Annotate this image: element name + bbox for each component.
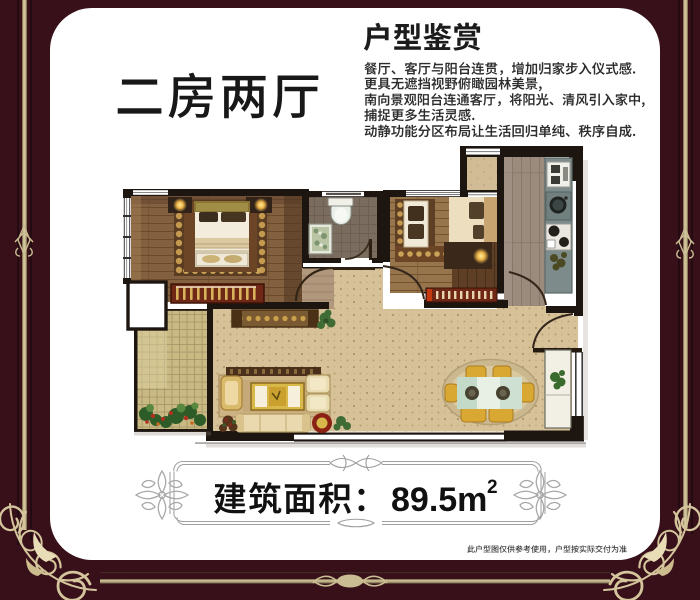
svg-text:2: 2	[487, 477, 498, 498]
svg-text:89.5m: 89.5m	[391, 481, 487, 519]
